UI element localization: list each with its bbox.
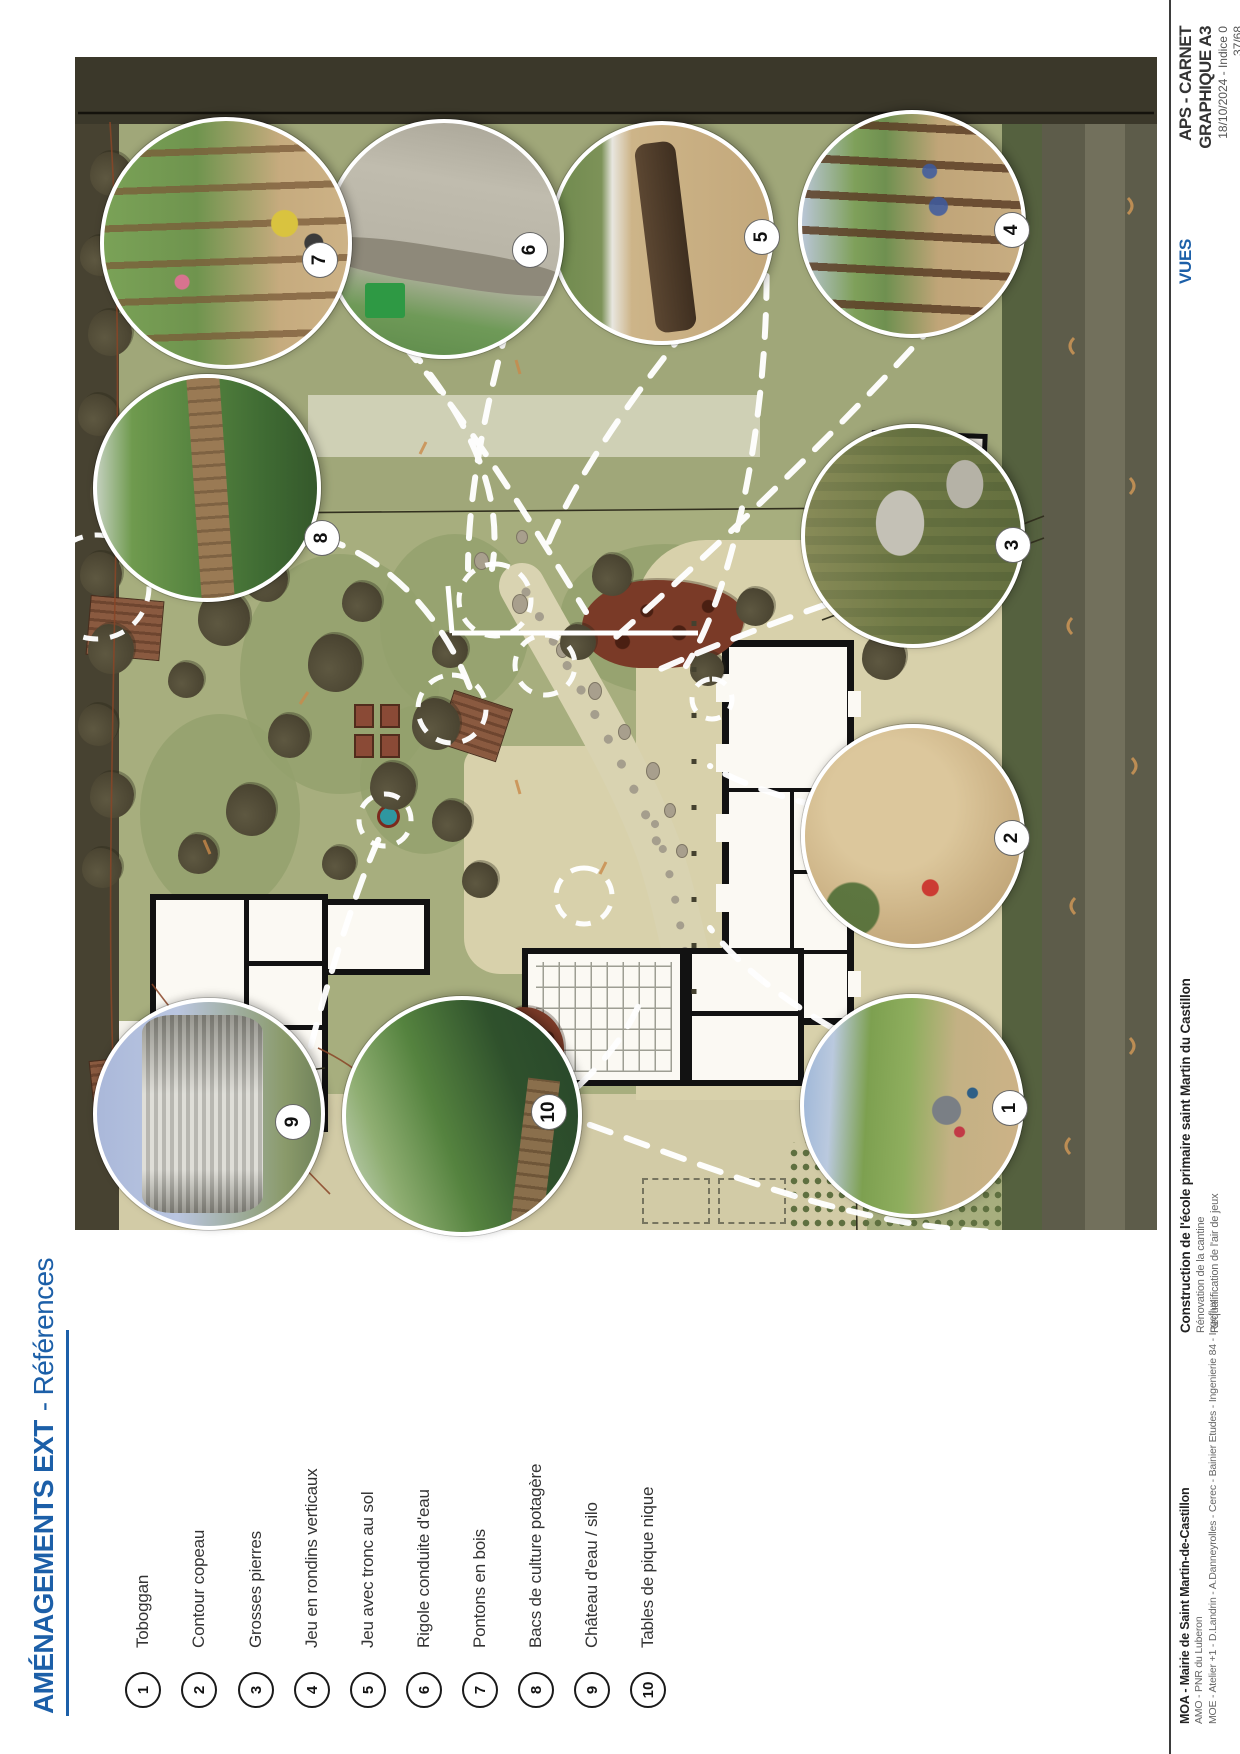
footer-doc-title: APS - CARNET GRAPHIQUE A3: [1176, 26, 1216, 239]
photo-badge-6: 6: [512, 232, 548, 268]
legend-num-8: 8: [518, 1672, 554, 1708]
footer-page-number: 37/68: [1231, 26, 1240, 284]
footer-doc-block: VUES APS - CARNET GRAPHIQUE A3 18/10/202…: [1176, 26, 1240, 284]
page-title-sub: - Références: [28, 1258, 59, 1411]
photo-circle-2-contour-copeau: [801, 724, 1025, 948]
photo-badge-10: 10: [531, 1094, 567, 1130]
photo-badge-3: 3: [995, 527, 1031, 563]
photo-badge-2: 2: [994, 820, 1030, 856]
legend-label-2: Contour copeau: [189, 1530, 209, 1648]
legend-item-10: 10Tables de pique nique: [631, 1487, 665, 1708]
legend-label-5: Jeu avec tronc au sol: [358, 1492, 378, 1648]
page-title-main: AMÉNAGEMENTS EXT: [28, 1420, 59, 1714]
photo-badge-5: 5: [744, 219, 780, 255]
footer-views-label: VUES: [1176, 239, 1196, 284]
legend-label-10: Tables de pique nique: [638, 1487, 658, 1648]
photo-badge-4: 4: [994, 212, 1030, 248]
photo-circle-5-tronc: [550, 121, 774, 345]
footer-amo: AMO - PNR du Luberon: [1193, 1300, 1207, 1724]
footer-project-line2: Rénovation de la cantine: [1194, 978, 1208, 1333]
footer-moe: MOE - Atelier +1 - D.Landrin - A.Danneyr…: [1207, 1300, 1221, 1724]
photo-circle-8-pontons: [93, 374, 321, 602]
legend-item-1: 1Toboggan: [126, 1575, 160, 1708]
a3-sheet: AMÉNAGEMENTS EXT- Références 1Toboggan 2…: [0, 0, 1240, 1754]
legend-label-7: Pontons en bois: [470, 1529, 490, 1648]
legend-num-2: 2: [181, 1672, 217, 1708]
photo-circle-1-toboggan: [800, 994, 1024, 1218]
legend-label-6: Rigole conduite d'eau: [414, 1489, 434, 1648]
footer-project-line3: Requalification de l'air de jeux: [1208, 978, 1222, 1333]
photo-badge-8: 8: [304, 520, 340, 556]
legend-num-9: 9: [574, 1672, 610, 1708]
photo-badge-7: 7: [302, 242, 338, 278]
legend-label-4: Jeu en rondins verticaux: [302, 1469, 322, 1648]
legend-item-7: 7Pontons en bois: [463, 1529, 497, 1708]
footer-divider: [1169, 0, 1171, 1754]
legend-num-6: 6: [406, 1672, 442, 1708]
photo-badge-9: 9: [275, 1104, 311, 1140]
footer-project-block: Construction de l'école primaire saint M…: [1178, 978, 1222, 1333]
legend-num-1: 1: [125, 1672, 161, 1708]
legend-label-3: Grosses pierres: [246, 1531, 266, 1648]
photo-circle-4-rondins: [798, 110, 1026, 338]
legend-label-8: Bacs de culture potagère: [526, 1464, 546, 1648]
photo-badge-1: 1: [992, 1090, 1028, 1126]
legend-item-5: 5Jeu avec tronc au sol: [351, 1492, 385, 1708]
legend-label-9: Château d'eau / silo: [582, 1502, 602, 1648]
legend-num-10: 10: [630, 1672, 666, 1708]
legend-label-1: Toboggan: [133, 1575, 153, 1648]
fence-lines: [448, 586, 698, 633]
page-title: AMÉNAGEMENTS EXT- Références: [28, 1258, 60, 1714]
legend-item-9: 9Château d'eau / silo: [575, 1502, 609, 1708]
legend-num-3: 3: [238, 1672, 274, 1708]
title-underline: [66, 1330, 69, 1716]
legend-item-2: 2Contour copeau: [182, 1530, 216, 1708]
photo-circle-3-grosses-pierres: [801, 424, 1025, 648]
legend-num-5: 5: [350, 1672, 386, 1708]
legend-num-4: 4: [294, 1672, 330, 1708]
footer-date-indice: 18/10/2024 - Indice 0: [1216, 26, 1231, 284]
footer-project-title: Construction de l'école primaire saint M…: [1178, 978, 1194, 1333]
legend-item-3: 3Grosses pierres: [239, 1531, 273, 1708]
footer-moa: MOA - Mairie de Saint Martin-de-Castillo…: [1178, 1300, 1193, 1724]
page: AMÉNAGEMENTS EXT- Références 1Toboggan 2…: [0, 0, 1240, 1754]
legend-num-7: 7: [462, 1672, 498, 1708]
footer-moa-block: MOA - Mairie de Saint Martin-de-Castillo…: [1178, 1300, 1220, 1724]
legend-item-6: 6Rigole conduite d'eau: [407, 1489, 441, 1708]
legend-item-8: 8Bacs de culture potagère: [519, 1464, 553, 1708]
legend-item-4: 4Jeu en rondins verticaux: [295, 1469, 329, 1708]
